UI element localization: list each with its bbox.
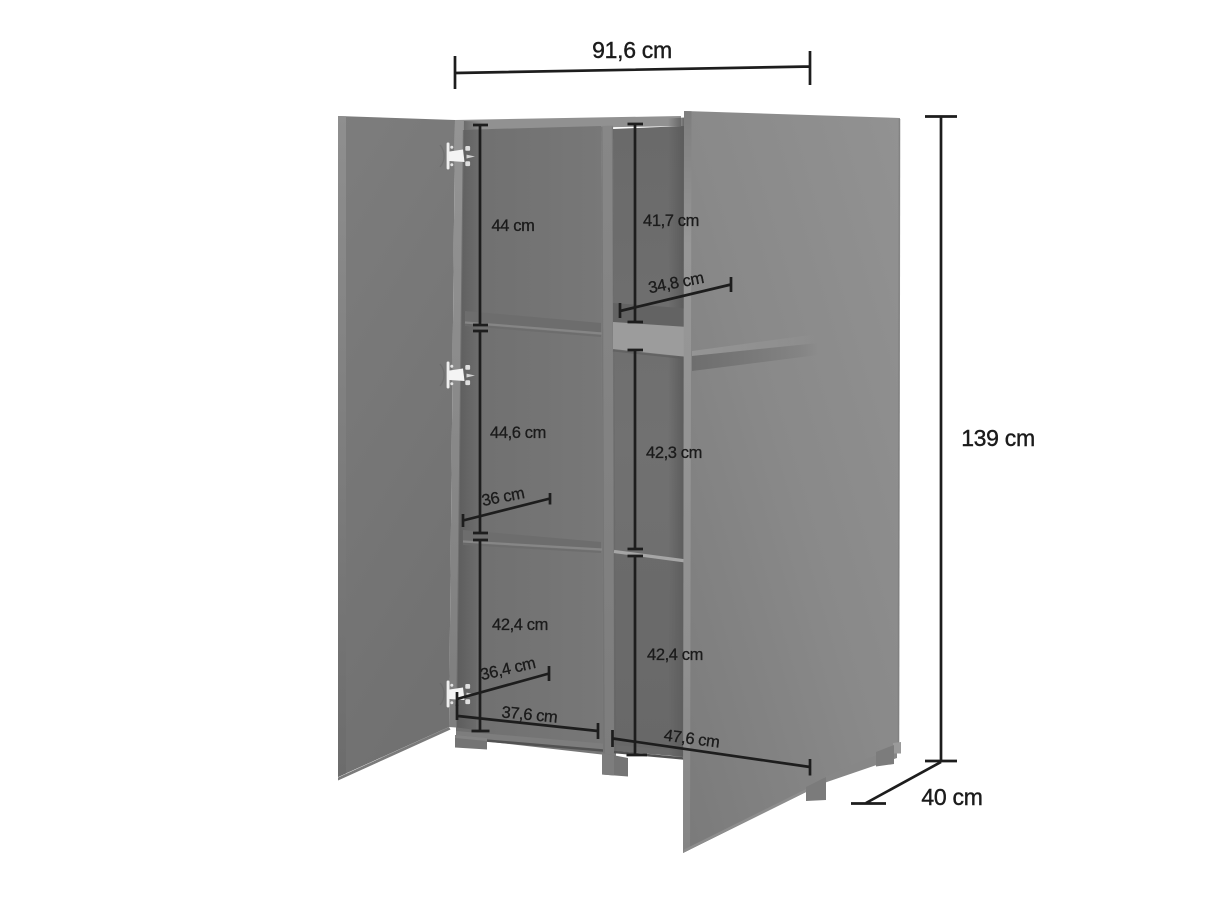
svg-text:44,6 cm: 44,6 cm xyxy=(490,424,546,442)
svg-text:42,4 cm: 42,4 cm xyxy=(647,646,703,664)
svg-text:41,7 cm: 41,7 cm xyxy=(643,212,699,230)
svg-text:91,6 cm: 91,6 cm xyxy=(592,37,672,63)
svg-text:40 cm: 40 cm xyxy=(921,784,982,810)
svg-text:139 cm: 139 cm xyxy=(961,425,1035,451)
svg-text:42,4 cm: 42,4 cm xyxy=(492,616,548,634)
svg-text:42,3 cm: 42,3 cm xyxy=(646,444,702,462)
svg-text:44 cm: 44 cm xyxy=(492,217,535,235)
